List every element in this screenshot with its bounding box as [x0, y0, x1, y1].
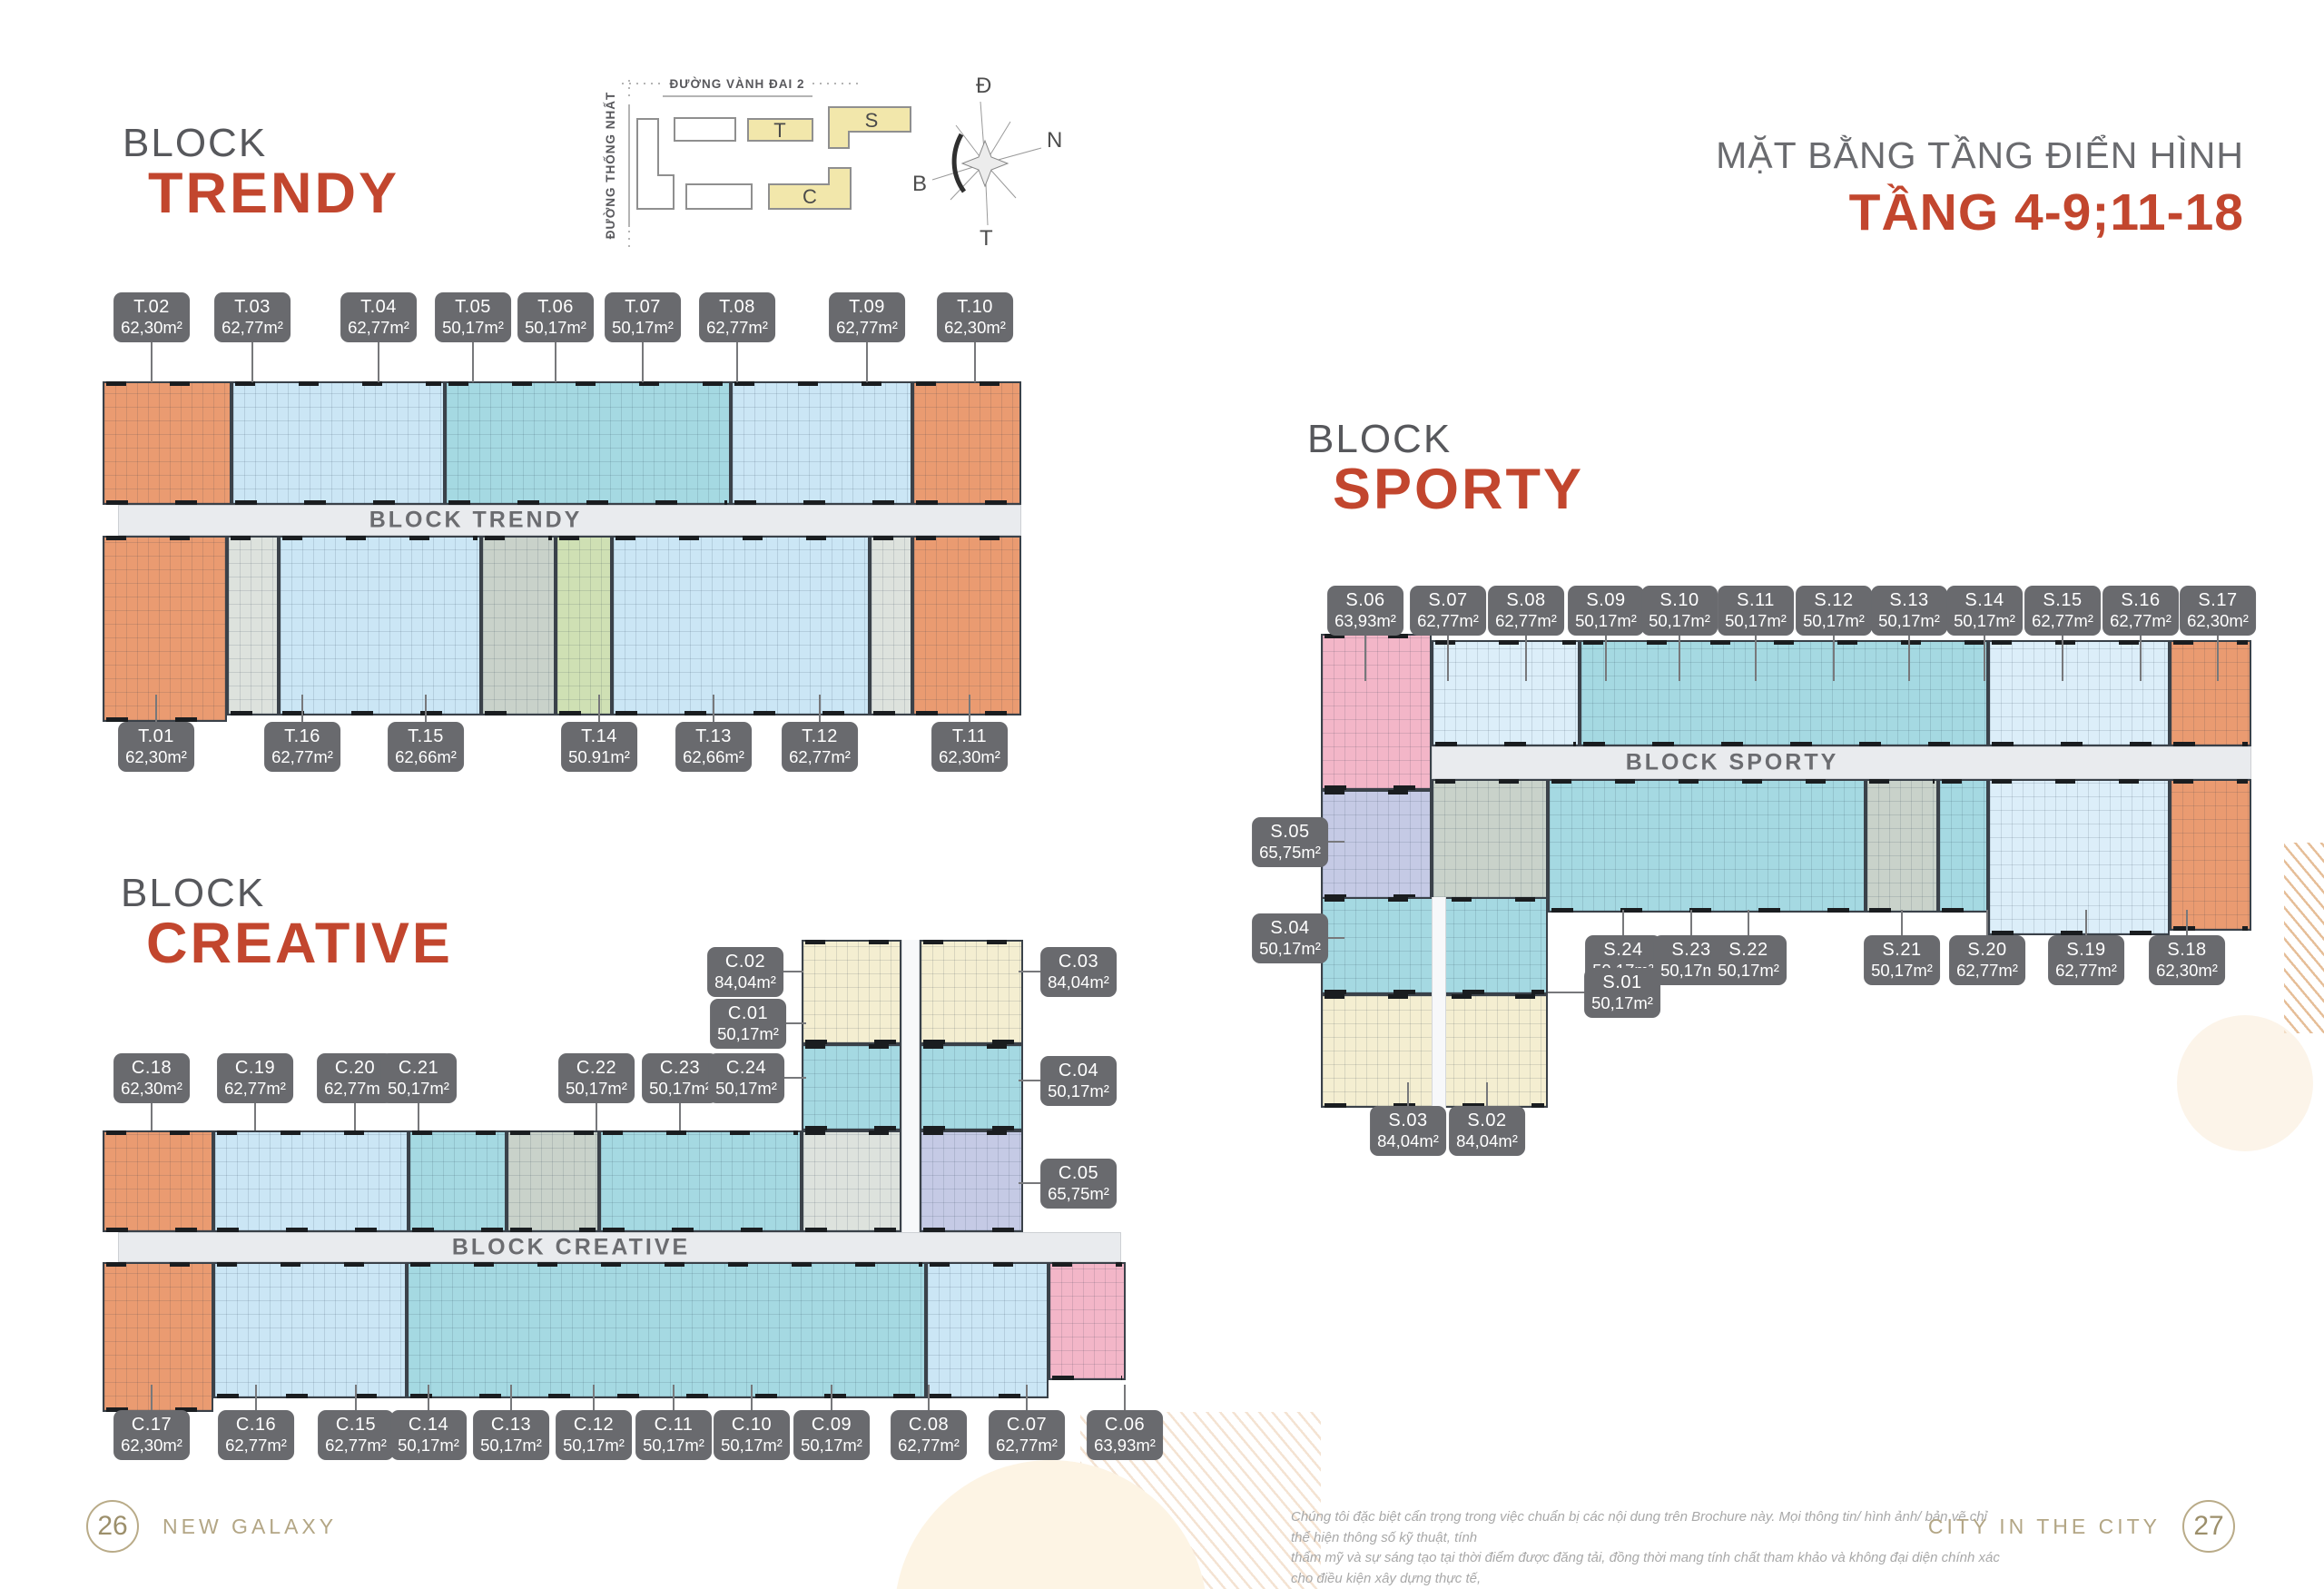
label-connector-line — [355, 1385, 357, 1410]
unit-label: T.0650,17m² — [517, 292, 594, 342]
label-connector-line — [2140, 634, 2142, 681]
corridor-gap — [901, 940, 920, 1232]
unit-id: S.04 — [1259, 918, 1321, 939]
site-map: ĐƯỜNG VÀNH ĐAI 2 ĐƯỜNG THỐNG NHẤT T S C … — [595, 64, 1067, 268]
decor-circle-right — [2177, 1015, 2313, 1151]
unit-area: 50,17m² — [1871, 961, 1933, 980]
unit-id: S.03 — [1377, 1110, 1439, 1131]
label-connector-line — [1447, 634, 1449, 681]
floorplan-unit — [1938, 779, 1988, 913]
unit-id: C.10 — [721, 1415, 783, 1436]
floorplan-core — [481, 536, 556, 716]
label-connector-line — [831, 1385, 832, 1410]
unit-label: S.0450,17m² — [1252, 913, 1328, 963]
site-block-outline-1 — [675, 118, 735, 141]
unit-area: 50,17m² — [1259, 939, 1321, 958]
page-number-right: 27 — [2182, 1500, 2235, 1553]
unit-id: T.04 — [348, 297, 409, 318]
unit-id: S.01 — [1591, 972, 1653, 993]
label-connector-line — [819, 695, 821, 722]
label-connector-line — [1901, 910, 1903, 935]
unit-id: S.14 — [1954, 590, 2015, 611]
floorplan-unit — [213, 1262, 407, 1398]
floorplan-unit — [407, 1262, 926, 1398]
label-connector-line — [751, 1385, 753, 1410]
heading-block-word: BLOCK — [1307, 419, 1584, 459]
unit-id: C.19 — [224, 1058, 286, 1079]
unit-id: S.12 — [1803, 590, 1865, 611]
unit-area: 84,04m² — [1048, 972, 1109, 992]
floorplan-unit — [1988, 779, 2170, 935]
label-connector-line — [418, 1101, 419, 1130]
unit-id: C.05 — [1048, 1163, 1109, 1184]
unit-label: C.0384,04m² — [1040, 947, 1117, 997]
unit-id: C.22 — [566, 1058, 627, 1079]
compass-label-d: Đ — [976, 74, 991, 98]
label-connector-line — [781, 1077, 806, 1079]
unit-id: T.03 — [222, 297, 283, 318]
unit-id: S.08 — [1495, 590, 1557, 611]
unit-id: S.16 — [2110, 590, 2171, 611]
floorplan-unit — [802, 1044, 901, 1130]
unit-area: 50,17m² — [442, 318, 504, 337]
unit-area: 62,77m² — [1417, 611, 1479, 630]
label-connector-line — [2186, 910, 2188, 935]
unit-area: 50,17m² — [525, 318, 586, 337]
label-connector-line — [713, 695, 714, 722]
unit-area: 50,17m² — [388, 1079, 449, 1098]
unit-area: 62,77m² — [2110, 611, 2171, 630]
unit-area: 62,66m² — [683, 747, 744, 766]
heading-block-sporty: BLOCK SPORTY — [1307, 419, 1584, 519]
unit-id: C.03 — [1048, 952, 1109, 972]
unit-label: C.0663,93m² — [1087, 1410, 1163, 1460]
label-connector-line — [593, 1385, 595, 1410]
unit-area: 50,17m² — [1048, 1081, 1109, 1100]
page-title-line1: MẶT BẰNG TẦNG ĐIỂN HÌNH — [1716, 134, 2244, 177]
floorplan-unit — [556, 536, 612, 716]
page-number-left: 26 — [86, 1500, 139, 1553]
label-connector-line — [254, 1101, 256, 1130]
unit-area: 50,17m² — [612, 318, 674, 337]
site-block-outline-2 — [686, 184, 752, 209]
footer-right: CITY IN THE CITY 27 — [1928, 1500, 2235, 1553]
unit-label: C.1962,77m² — [217, 1053, 293, 1103]
unit-id: C.20 — [324, 1058, 386, 1079]
unit-id: C.21 — [388, 1058, 449, 1079]
floorplan-unit — [870, 536, 912, 716]
floorplan-unit — [912, 536, 1021, 716]
unit-label: T.1662,77m² — [264, 722, 340, 772]
page-title: MẶT BẰNG TẦNG ĐIỂN HÌNH TẦNG 4-9;11-18 — [1716, 134, 2244, 242]
label-connector-line — [1984, 634, 1985, 681]
unit-label: C.0450,17m² — [1040, 1056, 1117, 1106]
label-connector-line — [1525, 634, 1527, 681]
unit-id: T.16 — [271, 726, 333, 747]
unit-area: 50,17m² — [1954, 611, 2015, 630]
unit-label: S.0150,17m² — [1584, 968, 1660, 1018]
label-connector-line — [1124, 1385, 1126, 1410]
unit-id: S.02 — [1456, 1110, 1518, 1131]
unit-area: 62,77m² — [222, 318, 283, 337]
unit-id: T.10 — [944, 297, 1006, 318]
label-connector-line — [510, 1385, 512, 1410]
label-connector-line — [1407, 1082, 1409, 1106]
floorplan-unit — [2170, 640, 2251, 746]
label-connector-line — [928, 1385, 930, 1410]
unit-area: 62,77m² — [996, 1436, 1058, 1455]
heading-block-word: BLOCK — [123, 123, 399, 163]
unit-label: S.0862,77m² — [1488, 586, 1564, 636]
unit-area: 84,04m² — [714, 972, 776, 992]
unit-id: C.11 — [643, 1415, 704, 1436]
unit-label: C.1862,30m² — [113, 1053, 190, 1103]
brand-right: CITY IN THE CITY — [1928, 1515, 2161, 1539]
unit-id: C.15 — [325, 1415, 387, 1436]
label-connector-line — [378, 340, 379, 382]
label-connector-line — [1833, 634, 1835, 681]
floorplan-unit — [1988, 640, 2170, 746]
unit-area: 50,17m² — [398, 1436, 459, 1455]
unit-area: 62,30m² — [939, 747, 1000, 766]
unit-id: S.17 — [2187, 590, 2249, 611]
site-block-s-label: S — [865, 109, 879, 132]
unit-area: 62,77m² — [348, 318, 409, 337]
unit-area: 62,77m² — [836, 318, 898, 337]
unit-label: T.0462,77m² — [340, 292, 417, 342]
label-connector-line — [974, 340, 976, 382]
label-connector-line — [2085, 910, 2087, 935]
unit-id: S.13 — [1878, 590, 1940, 611]
compass-label-b: B — [912, 172, 927, 196]
label-connector-line — [251, 340, 253, 382]
unit-id: T.13 — [683, 726, 744, 747]
floorplan-unit — [802, 940, 901, 1044]
unit-area: 50,17m² — [480, 1436, 542, 1455]
unit-id: T.02 — [121, 297, 182, 318]
unit-area: 50.91m² — [568, 747, 630, 766]
label-connector-line — [1986, 910, 1988, 935]
floorplan-unit — [920, 1044, 1023, 1130]
unit-id: T.12 — [789, 726, 851, 747]
unit-area: 62,77m² — [1956, 961, 2018, 980]
unit-id: C.08 — [898, 1415, 960, 1436]
corridor-creative: BLOCK CREATIVE — [118, 1232, 1121, 1262]
unit-id: T.05 — [442, 297, 504, 318]
unit-label: C.0284,04m² — [707, 947, 783, 997]
unit-id: C.17 — [121, 1415, 182, 1436]
unit-area: 50,17m² — [649, 1079, 711, 1098]
unit-area: 65,75m² — [1259, 843, 1321, 862]
unit-id: S.19 — [2055, 940, 2117, 961]
unit-area: 62,30m² — [121, 318, 182, 337]
label-connector-line — [151, 1385, 153, 1410]
corridor-trendy: BLOCK TRENDY — [118, 505, 1021, 536]
unit-id: S.18 — [2156, 940, 2218, 961]
unit-label: S.2250,17m² — [1710, 935, 1787, 985]
floorplan-unit — [1580, 640, 1988, 746]
road-label-left: ĐƯỜNG THỐNG NHẤT — [604, 92, 617, 239]
unit-id: T.07 — [612, 297, 674, 318]
unit-area: 62,77m² — [324, 1079, 386, 1098]
unit-area: 62,30m² — [121, 1079, 182, 1098]
unit-label: S.1762,30m² — [2180, 586, 2256, 636]
label-connector-line — [1908, 634, 1910, 681]
unit-label: C.2250,17m² — [558, 1053, 635, 1103]
floorplan-unit — [103, 381, 231, 505]
unit-label: S.1050,17m² — [1641, 586, 1718, 636]
label-connector-line — [1548, 992, 1588, 993]
unit-label: C.1662,77m² — [218, 1410, 294, 1460]
unit-area: 50,17m² — [1725, 611, 1787, 630]
unit-label: S.0663,93m² — [1327, 586, 1403, 636]
label-connector-line — [1364, 634, 1366, 681]
floorplan-unit — [279, 536, 481, 716]
floorplan-unit — [1321, 790, 1432, 899]
heading-block-name: TRENDY — [148, 163, 399, 223]
floorplan-unit — [612, 536, 870, 716]
floorplan-core — [802, 1130, 901, 1232]
site-block-c-label: C — [803, 185, 817, 208]
unit-id: S.05 — [1259, 822, 1321, 843]
unit-label: T.0362,77m² — [214, 292, 290, 342]
floorplan-unit — [920, 1130, 1023, 1232]
unit-area: 50,17m² — [715, 1079, 777, 1098]
brand-left: NEW GALAXY — [162, 1515, 337, 1539]
compass-icon — [932, 102, 1041, 225]
unit-id: T.09 — [836, 297, 898, 318]
label-connector-line — [1690, 910, 1692, 935]
unit-id: C.02 — [714, 952, 776, 972]
unit-label: S.1962,77m² — [2048, 935, 2124, 985]
floorplan-unit — [103, 1130, 213, 1232]
label-connector-line — [736, 340, 738, 382]
unit-label: T.0162,30m² — [118, 722, 194, 772]
corridor-label: BLOCK CREATIVE — [452, 1234, 690, 1260]
unit-area: 62,77m² — [898, 1436, 960, 1455]
decor-hatch-right — [2284, 843, 2324, 1033]
unit-label: C.0565,75m² — [1040, 1159, 1117, 1209]
unit-label: S.1350,17m² — [1871, 586, 1947, 636]
unit-label: T.1450.91m² — [561, 722, 637, 772]
unit-label: T.0550,17m² — [435, 292, 511, 342]
label-connector-line — [301, 695, 303, 722]
unit-area: 62,77m² — [706, 318, 768, 337]
unit-area: 63,93m² — [1094, 1436, 1156, 1455]
label-connector-line — [2217, 634, 2219, 681]
unit-id: C.09 — [801, 1415, 862, 1436]
unit-label: C.0862,77m² — [891, 1410, 967, 1460]
unit-label: C.1050,17m² — [714, 1410, 790, 1460]
floorplan-unit — [103, 536, 227, 722]
unit-area: 50,17m² — [1575, 611, 1637, 630]
label-connector-line — [472, 340, 474, 382]
floorplan-unit — [103, 1262, 213, 1412]
unit-area: 62,30m² — [2187, 611, 2249, 630]
floorplan-unit — [445, 381, 731, 505]
unit-id: S.21 — [1871, 940, 1933, 961]
unit-label: C.1150,17m² — [635, 1410, 712, 1460]
unit-label: C.1250,17m² — [556, 1410, 632, 1460]
unit-area: 62,30m² — [944, 318, 1006, 337]
unit-area: 62,77m² — [271, 747, 333, 766]
unit-label: S.2150,17m² — [1864, 935, 1940, 985]
label-connector-line — [1679, 634, 1680, 681]
unit-id: C.07 — [996, 1415, 1058, 1436]
unit-label: C.1562,77m² — [318, 1410, 394, 1460]
unit-id: T.08 — [706, 297, 768, 318]
floorplan-unit — [1432, 640, 1580, 746]
unit-area: 84,04m² — [1456, 1131, 1518, 1150]
corridor-gap — [1432, 897, 1446, 1108]
unit-id: T.01 — [125, 726, 187, 747]
floorplan-unit — [599, 1130, 802, 1232]
floorplan-unit — [213, 1130, 409, 1232]
unit-label: C.2350,17m² — [642, 1053, 718, 1103]
unit-id: S.10 — [1649, 590, 1710, 611]
unit-id: C.18 — [121, 1058, 182, 1079]
heading-block-trendy: BLOCK TRENDY — [123, 123, 399, 223]
brochure-page: { "page_title": { "line1": "MẶT BẰNG TẦN… — [0, 0, 2324, 1589]
unit-area: 62,66m² — [395, 747, 457, 766]
unit-label: T.0862,77m² — [699, 292, 775, 342]
unit-area: 50,17m² — [801, 1436, 862, 1455]
unit-id: S.24 — [1592, 940, 1654, 961]
unit-label: S.1250,17m² — [1796, 586, 1872, 636]
label-connector-line — [151, 1101, 153, 1130]
label-connector-line — [642, 340, 644, 382]
unit-label: S.0284,04m² — [1449, 1106, 1525, 1156]
unit-area: 62,77m² — [789, 747, 851, 766]
unit-area: 62,30m² — [2156, 961, 2218, 980]
unit-id: S.11 — [1725, 590, 1787, 611]
unit-id: C.14 — [398, 1415, 459, 1436]
unit-label: C.0762,77m² — [989, 1410, 1065, 1460]
unit-id: S.09 — [1575, 590, 1637, 611]
unit-label: S.0950,17m² — [1568, 586, 1644, 636]
label-connector-line — [1622, 910, 1624, 935]
unit-id: C.12 — [563, 1415, 625, 1436]
label-connector-line — [151, 340, 153, 382]
footer-left: 26 NEW GALAXY — [86, 1500, 337, 1553]
heading-block-name: SPORTY — [1333, 459, 1584, 519]
label-connector-line — [598, 695, 600, 722]
unit-id: S.15 — [2032, 590, 2093, 611]
unit-area: 62,77m² — [2032, 611, 2093, 630]
unit-label: S.2062,77m² — [1949, 935, 2025, 985]
label-connector-line — [969, 695, 970, 722]
label-connector-line — [428, 1385, 429, 1410]
corridor-label: BLOCK TRENDY — [369, 508, 583, 534]
unit-label: S.1450,17m² — [1946, 586, 2023, 636]
label-connector-line — [425, 695, 427, 722]
floorplan-unit — [920, 940, 1023, 1044]
compass-label-n: N — [1047, 128, 1062, 153]
site-block-t-label: T — [773, 119, 785, 142]
label-connector-line — [866, 340, 868, 382]
unit-id: T.11 — [939, 726, 1000, 747]
unit-label: T.0962,77m² — [829, 292, 905, 342]
footer-disclaimer: Chúng tôi đặc biệt cẩn trọng trong việc … — [1291, 1507, 2008, 1589]
road-label-top: ĐƯỜNG VÀNH ĐAI 2 — [670, 77, 805, 91]
unit-id: S.06 — [1334, 590, 1396, 611]
unit-id: C.13 — [480, 1415, 542, 1436]
unit-label: T.1162,30m² — [931, 722, 1008, 772]
floorplan-unit — [926, 1262, 1049, 1398]
unit-area: 62,77m² — [2055, 961, 2117, 980]
floorplan-core — [507, 1130, 599, 1232]
unit-area: 50,17m² — [721, 1436, 783, 1455]
unit-area: 50,17m² — [1803, 611, 1865, 630]
label-connector-line — [2062, 634, 2063, 681]
floorplan-unit — [912, 381, 1021, 505]
unit-label: C.1450,17m² — [390, 1410, 467, 1460]
unit-area: 84,04m² — [1377, 1131, 1439, 1150]
label-connector-line — [255, 1385, 257, 1410]
unit-label: S.1562,77m² — [2024, 586, 2101, 636]
label-connector-line — [354, 1101, 356, 1130]
unit-area: 50,17m² — [717, 1024, 779, 1043]
unit-area: 50,17m² — [1718, 961, 1779, 980]
unit-id: S.07 — [1417, 590, 1479, 611]
floorplan-unit — [231, 381, 445, 505]
unit-id: C.23 — [649, 1058, 711, 1079]
unit-label: S.1150,17m² — [1718, 586, 1794, 636]
unit-label: S.1662,77m² — [2102, 586, 2179, 636]
corridor-sporty: BLOCK SPORTY — [1432, 746, 2251, 779]
label-connector-line — [1748, 910, 1749, 935]
unit-label: C.2150,17m² — [380, 1053, 457, 1103]
unit-area: 65,75m² — [1048, 1184, 1109, 1203]
unit-label: C.1762,30m² — [113, 1410, 190, 1460]
label-connector-line — [1486, 1082, 1488, 1106]
unit-label: S.1862,30m² — [2149, 935, 2225, 985]
page-title-line2: TẦNG 4-9;11-18 — [1716, 183, 2244, 242]
floorplan-unit — [1548, 779, 1866, 913]
unit-label: S.0565,75m² — [1252, 817, 1328, 867]
unit-area: 50,17m² — [566, 1079, 627, 1098]
floorplan-unit — [1321, 634, 1432, 790]
unit-area: 62,77m² — [1495, 611, 1557, 630]
unit-id: T.06 — [525, 297, 586, 318]
unit-id: C.04 — [1048, 1061, 1109, 1081]
heading-block-creative: BLOCK CREATIVE — [121, 873, 453, 973]
label-connector-line — [673, 1385, 675, 1410]
label-connector-line — [1026, 1385, 1028, 1410]
unit-label: C.0950,17m² — [793, 1410, 870, 1460]
floorplan-unit — [731, 381, 912, 505]
unit-label: T.1362,66m² — [675, 722, 752, 772]
compass-label-t: T — [980, 226, 993, 251]
unit-area: 62,30m² — [121, 1436, 182, 1455]
floorplan-unit — [227, 536, 279, 716]
site-block-outline-l — [637, 119, 674, 209]
unit-area: 50,17m² — [1878, 611, 1940, 630]
unit-area: 50,17m² — [643, 1436, 704, 1455]
floorplan-unit — [409, 1130, 507, 1232]
unit-label: S.0762,77m² — [1410, 586, 1486, 636]
unit-id: C.16 — [225, 1415, 287, 1436]
label-connector-line — [596, 1101, 597, 1130]
unit-area: 62,77m² — [224, 1079, 286, 1098]
unit-id: S.20 — [1956, 940, 2018, 961]
unit-id: C.06 — [1094, 1415, 1156, 1436]
floorplan-unit — [2170, 779, 2251, 931]
unit-label: T.0262,30m² — [113, 292, 190, 342]
unit-area: 62,30m² — [125, 747, 187, 766]
label-connector-line — [555, 340, 556, 382]
unit-area: 62,77m² — [225, 1436, 287, 1455]
